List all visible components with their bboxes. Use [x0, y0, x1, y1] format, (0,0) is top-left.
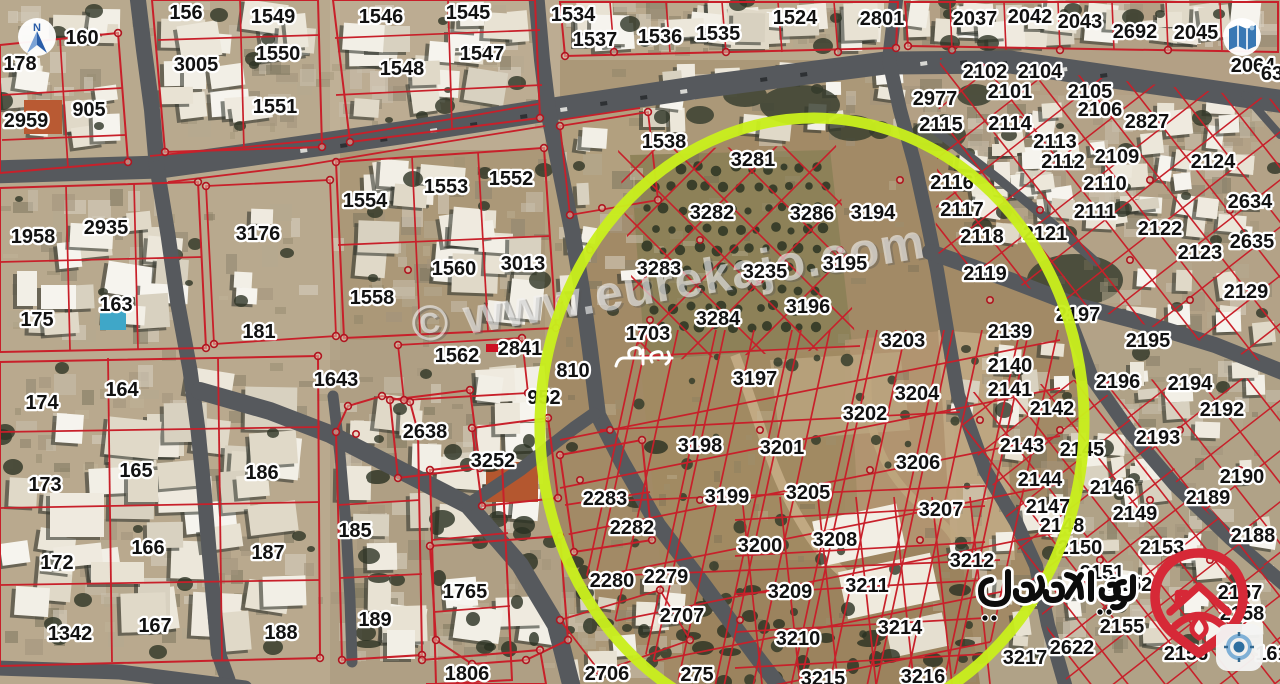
svg-text:3286: 3286: [790, 203, 835, 225]
svg-text:1534: 1534: [551, 4, 596, 26]
svg-text:2149: 2149: [1113, 503, 1158, 525]
svg-text:3210: 3210: [776, 628, 821, 650]
svg-text:1562: 1562: [435, 345, 480, 367]
svg-text:2692: 2692: [1113, 21, 1158, 43]
svg-text:1342: 1342: [48, 623, 93, 645]
svg-text:3197: 3197: [733, 368, 778, 390]
svg-text:3208: 3208: [813, 529, 858, 551]
svg-text:2188: 2188: [1231, 525, 1276, 547]
svg-text:3217: 3217: [1003, 647, 1048, 669]
svg-text:189: 189: [358, 609, 391, 631]
svg-text:2638: 2638: [403, 421, 448, 443]
svg-text:1553: 1553: [424, 176, 469, 198]
svg-text:1558: 1558: [350, 287, 395, 309]
svg-text:3207: 3207: [919, 499, 964, 521]
svg-text:3203: 3203: [881, 330, 926, 352]
svg-text:3194: 3194: [851, 202, 896, 224]
svg-text:3198: 3198: [678, 435, 723, 457]
svg-text:181: 181: [242, 321, 275, 343]
svg-text:1554: 1554: [343, 190, 388, 212]
svg-text:2282: 2282: [610, 517, 655, 539]
svg-text:2117: 2117: [940, 199, 983, 221]
svg-text:2193: 2193: [1136, 427, 1181, 449]
svg-text:3199: 3199: [705, 486, 750, 508]
svg-text:2634: 2634: [1228, 191, 1273, 213]
svg-text:3252: 3252: [471, 450, 516, 472]
svg-text:1552: 1552: [489, 168, 534, 190]
svg-text:3211: 3211: [845, 575, 888, 597]
svg-text:2195: 2195: [1126, 330, 1171, 352]
svg-text:2196: 2196: [1096, 371, 1141, 393]
svg-text:2192: 2192: [1200, 399, 1245, 421]
svg-text:2123: 2123: [1178, 242, 1223, 264]
svg-text:2102: 2102: [963, 61, 1008, 83]
svg-text:3282: 3282: [690, 202, 735, 224]
svg-text:174: 174: [25, 392, 59, 414]
svg-text:2155: 2155: [1100, 616, 1145, 638]
svg-text:2622: 2622: [1050, 637, 1095, 659]
svg-text:3195: 3195: [823, 253, 868, 275]
svg-text:172: 172: [40, 552, 73, 574]
svg-text:1703: 1703: [626, 323, 671, 345]
svg-text:3215: 3215: [801, 668, 846, 684]
svg-text:2045: 2045: [1174, 22, 1219, 44]
svg-text:2104: 2104: [1018, 61, 1063, 83]
svg-text:1560: 1560: [432, 258, 477, 280]
svg-text:2977: 2977: [913, 88, 958, 110]
svg-text:2142: 2142: [1030, 398, 1075, 420]
svg-text:2112: 2112: [1041, 151, 1084, 173]
svg-text:1537: 1537: [573, 29, 618, 51]
svg-text:2110: 2110: [1083, 173, 1126, 195]
svg-text:2124: 2124: [1191, 151, 1236, 173]
svg-text:3205: 3205: [786, 482, 831, 504]
svg-text:275: 275: [680, 664, 713, 684]
svg-text:2707: 2707: [660, 605, 705, 627]
svg-text:3281: 3281: [731, 149, 776, 171]
svg-text:1549: 1549: [251, 6, 296, 28]
svg-text:2037: 2037: [953, 8, 998, 30]
svg-text:1550: 1550: [256, 43, 301, 65]
svg-text:186: 186: [245, 462, 278, 484]
svg-text:3201: 3201: [760, 437, 805, 459]
svg-text:2706: 2706: [585, 663, 630, 684]
svg-text:3216: 3216: [901, 666, 946, 684]
svg-text:2111: 2111: [1074, 201, 1116, 223]
svg-text:2114: 2114: [988, 113, 1032, 135]
svg-text:167: 167: [138, 615, 171, 637]
svg-text:3200: 3200: [738, 535, 783, 557]
svg-text:2959: 2959: [4, 110, 49, 132]
svg-text:2042: 2042: [1008, 6, 1053, 28]
svg-text:1546: 1546: [359, 6, 404, 28]
svg-text:187: 187: [251, 542, 284, 564]
svg-text:1524: 1524: [773, 7, 818, 29]
svg-text:3204: 3204: [895, 383, 940, 405]
svg-text:1548: 1548: [380, 58, 425, 80]
svg-text:160: 160: [65, 27, 98, 49]
svg-text:2841: 2841: [498, 338, 543, 360]
svg-text:164: 164: [105, 379, 139, 401]
svg-text:1765: 1765: [443, 581, 488, 603]
svg-text:178: 178: [3, 53, 36, 75]
svg-text:1545: 1545: [446, 2, 491, 24]
svg-text:185: 185: [338, 520, 371, 542]
svg-text:2118: 2118: [960, 226, 1003, 248]
svg-text:2106: 2106: [1078, 99, 1123, 121]
svg-text:2109: 2109: [1095, 146, 1140, 168]
svg-text:1535: 1535: [696, 23, 741, 45]
svg-text:1547: 1547: [460, 43, 505, 65]
svg-text:2146: 2146: [1090, 477, 1135, 499]
svg-text:2279: 2279: [644, 566, 689, 588]
svg-text:2140: 2140: [988, 355, 1033, 377]
svg-text:2801: 2801: [860, 8, 905, 30]
svg-text:2139: 2139: [988, 321, 1033, 343]
svg-text:1538: 1538: [642, 131, 687, 153]
svg-text:2144: 2144: [1018, 469, 1063, 491]
svg-text:2190: 2190: [1220, 466, 1265, 488]
svg-text:3005: 3005: [174, 54, 219, 76]
svg-text:3209: 3209: [768, 581, 813, 603]
svg-text:3214: 3214: [878, 617, 923, 639]
svg-text:810: 810: [556, 360, 589, 382]
svg-text:1536: 1536: [638, 26, 683, 48]
svg-text:1806: 1806: [445, 663, 490, 684]
svg-text:188: 188: [264, 622, 297, 644]
svg-text:2635: 2635: [1230, 231, 1275, 253]
svg-text:165: 165: [119, 460, 152, 482]
svg-text:2189: 2189: [1186, 487, 1231, 509]
svg-text:2043: 2043: [1058, 11, 1103, 33]
svg-text:163: 163: [99, 294, 132, 316]
svg-text:2141: 2141: [988, 379, 1033, 401]
svg-text:2827: 2827: [1125, 111, 1170, 133]
svg-text:166: 166: [131, 537, 164, 559]
svg-text:1551: 1551: [253, 96, 298, 118]
svg-text:3176: 3176: [236, 223, 281, 245]
svg-text:2129: 2129: [1224, 281, 1269, 303]
svg-text:3196: 3196: [786, 296, 831, 318]
svg-text:3235: 3235: [743, 261, 788, 283]
svg-text:3206: 3206: [896, 452, 941, 474]
svg-text:2935: 2935: [84, 217, 129, 239]
svg-text:2101: 2101: [988, 81, 1033, 103]
svg-text:3283: 3283: [637, 258, 682, 280]
svg-text:1643: 1643: [314, 369, 359, 391]
svg-text:2283: 2283: [583, 488, 628, 510]
svg-text:156: 156: [169, 2, 202, 24]
svg-text:3202: 3202: [843, 403, 888, 425]
svg-text:175: 175: [20, 309, 53, 331]
svg-text:1958: 1958: [11, 226, 56, 248]
svg-text:905: 905: [72, 99, 105, 121]
svg-text:3284: 3284: [696, 308, 741, 330]
svg-text:2143: 2143: [1000, 435, 1045, 457]
svg-text:173: 173: [28, 474, 61, 496]
svg-text:2280: 2280: [590, 570, 635, 592]
svg-text:2115: 2115: [919, 114, 962, 136]
svg-text:2113: 2113: [1033, 131, 1076, 153]
svg-text:2119: 2119: [963, 263, 1006, 285]
svg-text:2122: 2122: [1138, 218, 1183, 240]
svg-text:2194: 2194: [1168, 373, 1213, 395]
svg-text:3212: 3212: [950, 550, 995, 572]
svg-text:63: 63: [1261, 63, 1280, 85]
svg-text:3013: 3013: [501, 253, 546, 275]
